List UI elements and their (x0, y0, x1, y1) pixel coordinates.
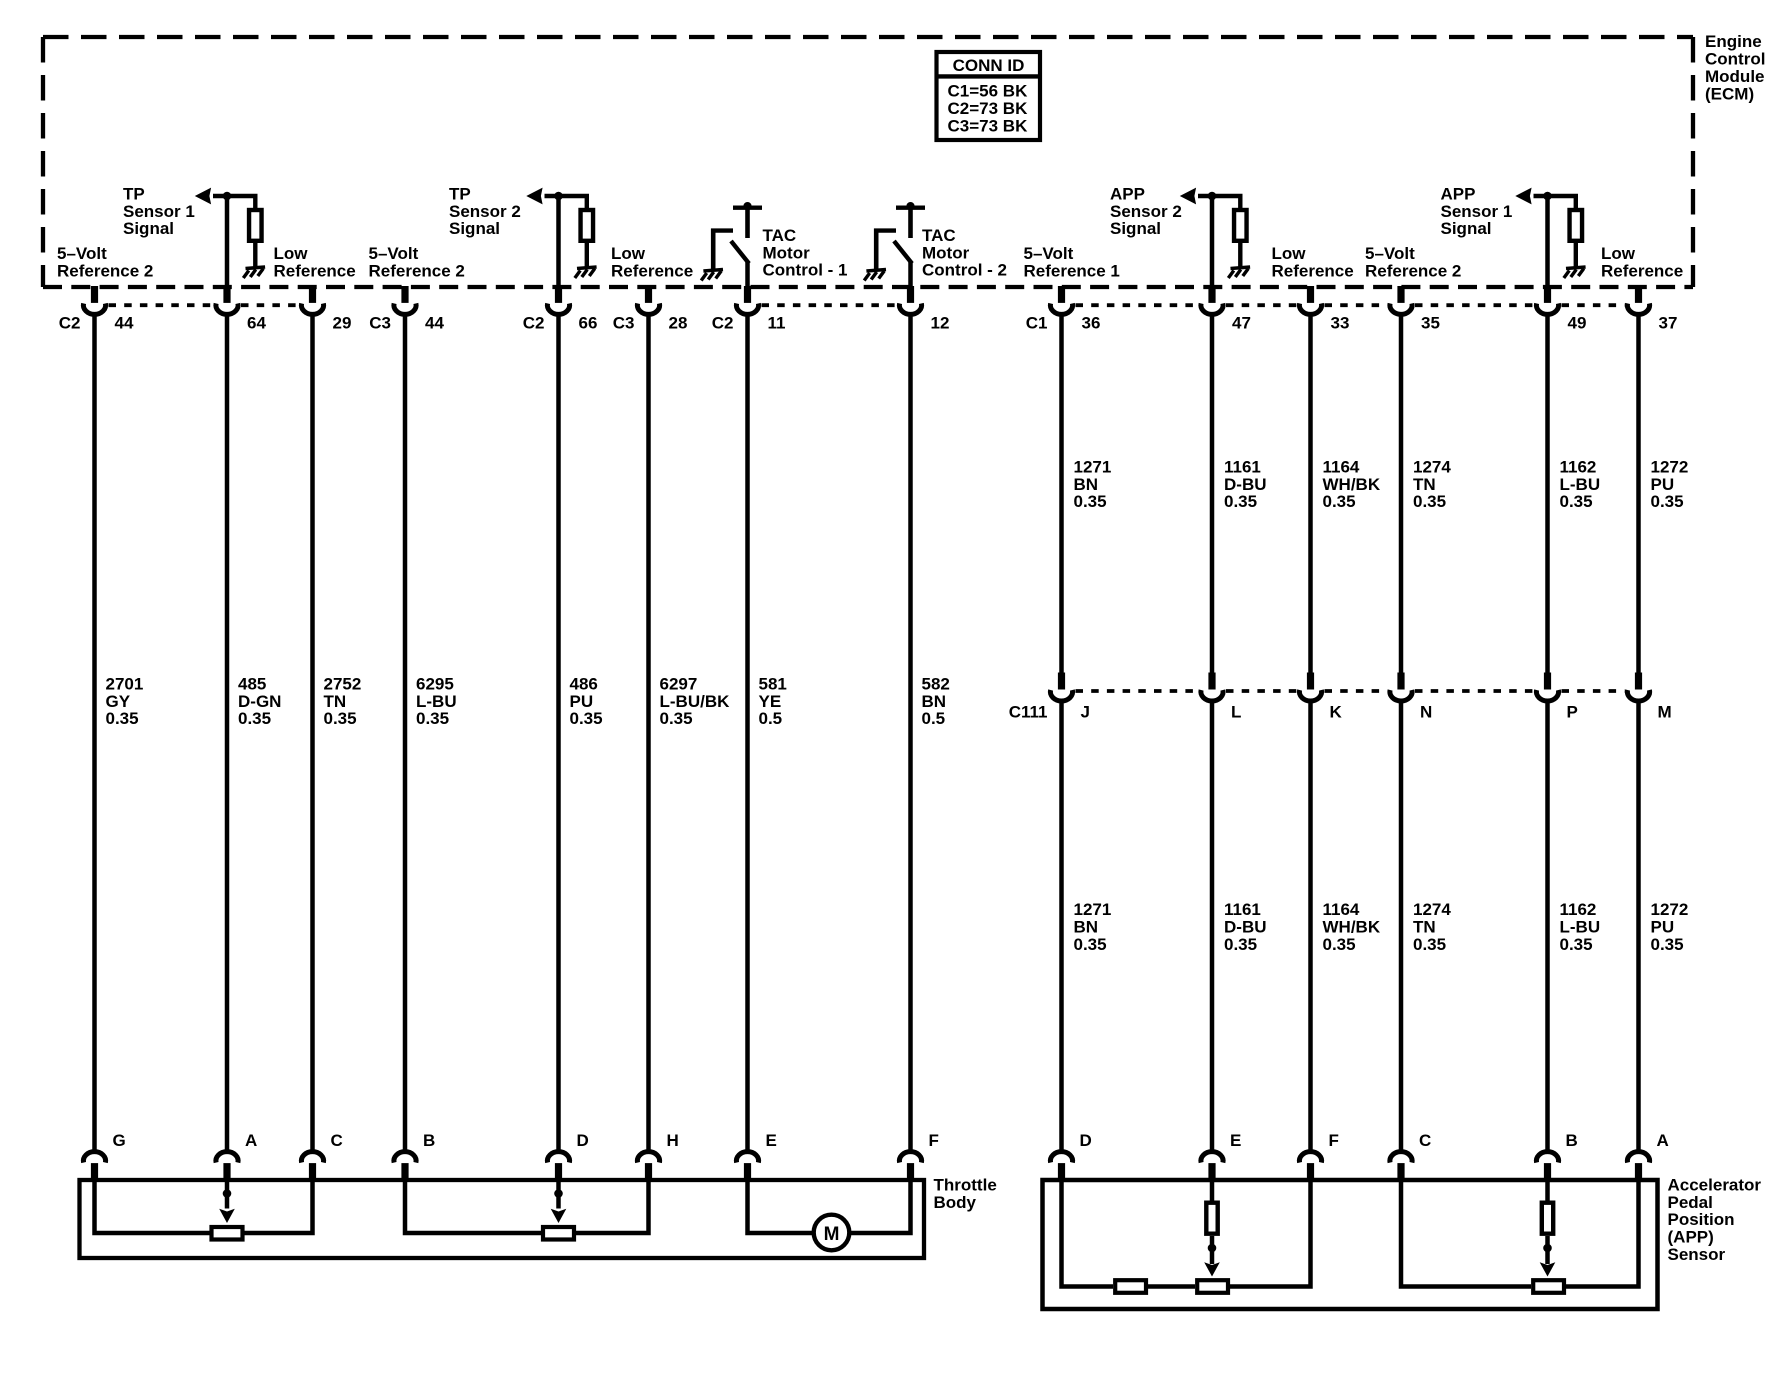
svg-text:0.35: 0.35 (1413, 935, 1446, 954)
svg-text:1272: 1272 (1651, 457, 1689, 476)
svg-text:0.35: 0.35 (660, 709, 693, 728)
svg-text:0.35: 0.35 (1074, 492, 1107, 511)
svg-text:BN: BN (1074, 475, 1099, 494)
svg-text:0.5: 0.5 (922, 709, 946, 728)
svg-text:C3: C3 (369, 314, 391, 333)
svg-text:0.35: 0.35 (1224, 492, 1257, 511)
svg-text:5–Volt: 5–Volt (57, 244, 107, 263)
svg-text:E: E (1230, 1131, 1241, 1150)
svg-text:C1=56 BK: C1=56 BK (948, 82, 1029, 101)
svg-text:C3=73 BK: C3=73 BK (948, 117, 1029, 136)
svg-text:BN: BN (922, 692, 947, 711)
svg-text:5–Volt: 5–Volt (1365, 244, 1415, 263)
svg-text:C2: C2 (712, 314, 734, 333)
svg-text:582: 582 (922, 674, 950, 693)
svg-text:F: F (1329, 1131, 1339, 1150)
svg-text:1164: 1164 (1323, 457, 1360, 476)
svg-text:K: K (1330, 703, 1343, 722)
svg-text:1271: 1271 (1074, 900, 1112, 919)
svg-text:D-BU: D-BU (1224, 475, 1267, 494)
svg-text:TAC: TAC (922, 226, 956, 245)
svg-text:Low: Low (1272, 244, 1307, 263)
svg-text:C2=73 BK: C2=73 BK (948, 99, 1029, 118)
svg-text:L-BU: L-BU (1560, 475, 1601, 494)
svg-text:12: 12 (931, 314, 950, 333)
svg-text:Reference: Reference (1601, 261, 1683, 280)
svg-text:Engine: Engine (1705, 32, 1762, 51)
svg-text:TAC: TAC (763, 226, 797, 245)
svg-text:Sensor 1: Sensor 1 (1441, 202, 1513, 221)
svg-text:0.35: 0.35 (1560, 935, 1593, 954)
svg-text:PU: PU (570, 692, 594, 711)
svg-text:Signal: Signal (1441, 219, 1492, 238)
svg-text:485: 485 (238, 674, 266, 693)
svg-text:B: B (1566, 1131, 1578, 1150)
svg-text:1272: 1272 (1651, 900, 1689, 919)
svg-text:D-BU: D-BU (1224, 917, 1267, 936)
svg-text:Low: Low (1601, 244, 1636, 263)
svg-text:5–Volt: 5–Volt (1024, 244, 1074, 263)
svg-text:0.35: 0.35 (1651, 492, 1684, 511)
svg-text:H: H (667, 1131, 679, 1150)
svg-text:PU: PU (1651, 475, 1675, 494)
svg-text:1274: 1274 (1413, 900, 1451, 919)
svg-text:Reference: Reference (1272, 261, 1354, 280)
svg-text:A: A (245, 1131, 257, 1150)
svg-text:0.35: 0.35 (1323, 935, 1356, 954)
svg-text:1161: 1161 (1224, 900, 1261, 919)
svg-text:P: P (1567, 703, 1578, 722)
svg-text:0.35: 0.35 (1651, 935, 1684, 954)
svg-text:APP: APP (1441, 184, 1476, 203)
svg-text:Reference 2: Reference 2 (369, 261, 465, 280)
svg-text:0.35: 0.35 (1560, 492, 1593, 511)
svg-text:TN: TN (324, 692, 347, 711)
svg-text:49: 49 (1568, 314, 1587, 333)
svg-text:33: 33 (1331, 314, 1350, 333)
svg-text:6297: 6297 (660, 674, 698, 693)
svg-text:64: 64 (247, 314, 266, 333)
svg-text:47: 47 (1232, 314, 1251, 333)
svg-text:1162: 1162 (1560, 900, 1597, 919)
svg-text:Sensor 2: Sensor 2 (1110, 202, 1182, 221)
svg-text:C: C (331, 1131, 343, 1150)
svg-text:C3: C3 (613, 314, 635, 333)
svg-text:Reference: Reference (274, 261, 356, 280)
svg-text:TN: TN (1413, 917, 1436, 936)
svg-text:37: 37 (1659, 314, 1678, 333)
svg-text:M: M (1658, 703, 1672, 722)
svg-text:G: G (113, 1131, 126, 1150)
svg-text:L: L (1231, 703, 1241, 722)
svg-text:Low: Low (611, 244, 646, 263)
svg-text:Reference: Reference (611, 261, 693, 280)
svg-text:D-GN: D-GN (238, 692, 281, 711)
svg-text:581: 581 (759, 674, 787, 693)
svg-text:Signal: Signal (123, 219, 174, 238)
svg-text:2752: 2752 (324, 674, 362, 693)
svg-text:28: 28 (669, 314, 688, 333)
svg-text:D: D (1080, 1131, 1092, 1150)
svg-text:1274: 1274 (1413, 457, 1451, 476)
svg-text:11: 11 (768, 314, 786, 333)
svg-text:Control - 1: Control - 1 (763, 261, 848, 280)
svg-text:35: 35 (1421, 314, 1440, 333)
svg-text:0.35: 0.35 (1074, 935, 1107, 954)
svg-text:BN: BN (1074, 917, 1099, 936)
svg-text:0.35: 0.35 (1413, 492, 1446, 511)
svg-text:L-BU: L-BU (1560, 917, 1601, 936)
svg-text:Reference 2: Reference 2 (57, 261, 153, 280)
svg-text:0.35: 0.35 (416, 709, 449, 728)
svg-text:0.35: 0.35 (106, 709, 139, 728)
svg-text:6295: 6295 (416, 674, 454, 693)
svg-text:44: 44 (115, 314, 134, 333)
svg-text:TN: TN (1413, 475, 1436, 494)
svg-text:1271: 1271 (1074, 457, 1112, 476)
svg-text:Position: Position (1668, 1210, 1735, 1229)
svg-text:B: B (423, 1131, 435, 1150)
svg-text:C1: C1 (1026, 314, 1048, 333)
svg-text:N: N (1420, 703, 1432, 722)
svg-text:Sensor: Sensor (1668, 1245, 1726, 1264)
svg-text:YE: YE (759, 692, 782, 711)
svg-text:(ECM): (ECM) (1705, 84, 1754, 103)
svg-text:36: 36 (1082, 314, 1101, 333)
svg-text:1164: 1164 (1323, 900, 1360, 919)
svg-text:2701: 2701 (106, 674, 144, 693)
svg-text:TP: TP (123, 184, 145, 203)
svg-text:L-BU/BK: L-BU/BK (660, 692, 731, 711)
svg-text:1162: 1162 (1560, 457, 1597, 476)
svg-text:66: 66 (579, 314, 598, 333)
svg-text:WH/BK: WH/BK (1323, 475, 1381, 494)
svg-text:APP: APP (1110, 184, 1145, 203)
svg-text:5–Volt: 5–Volt (369, 244, 419, 263)
svg-text:44: 44 (425, 314, 444, 333)
svg-text:M: M (824, 1224, 840, 1245)
svg-text:Reference 1: Reference 1 (1024, 261, 1120, 280)
svg-text:F: F (929, 1131, 939, 1150)
svg-text:1161: 1161 (1224, 457, 1261, 476)
svg-text:Control: Control (1705, 50, 1765, 69)
svg-text:A: A (1657, 1131, 1669, 1150)
svg-text:Control - 2: Control - 2 (922, 261, 1007, 280)
svg-text:Pedal: Pedal (1668, 1193, 1713, 1212)
svg-text:0.35: 0.35 (1224, 935, 1257, 954)
svg-text:0.35: 0.35 (324, 709, 357, 728)
svg-text:Accelerator: Accelerator (1668, 1175, 1762, 1194)
svg-text:E: E (766, 1131, 777, 1150)
svg-text:WH/BK: WH/BK (1323, 917, 1381, 936)
svg-text:(APP): (APP) (1668, 1228, 1714, 1247)
svg-text:Throttle: Throttle (934, 1175, 997, 1194)
svg-text:29: 29 (333, 314, 352, 333)
svg-text:C2: C2 (59, 314, 81, 333)
svg-text:Body: Body (934, 1193, 977, 1212)
svg-text:D: D (577, 1131, 589, 1150)
svg-text:0.35: 0.35 (1323, 492, 1356, 511)
svg-text:C: C (1419, 1131, 1431, 1150)
svg-text:Sensor 2: Sensor 2 (449, 202, 521, 221)
svg-text:Signal: Signal (1110, 219, 1161, 238)
svg-text:C111: C111 (1009, 703, 1048, 722)
svg-text:Module: Module (1705, 67, 1765, 86)
svg-text:L-BU: L-BU (416, 692, 457, 711)
svg-text:Sensor 1: Sensor 1 (123, 202, 195, 221)
svg-text:Signal: Signal (449, 219, 500, 238)
svg-text:TP: TP (449, 184, 471, 203)
svg-text:J: J (1081, 703, 1090, 722)
svg-text:PU: PU (1651, 917, 1675, 936)
svg-text:0.35: 0.35 (238, 709, 271, 728)
svg-text:Reference 2: Reference 2 (1365, 261, 1461, 280)
svg-text:0.35: 0.35 (570, 709, 603, 728)
svg-text:Low: Low (274, 244, 309, 263)
svg-text:C2: C2 (523, 314, 545, 333)
svg-text:Motor: Motor (763, 243, 811, 262)
svg-text:0.5: 0.5 (759, 709, 783, 728)
svg-text:CONN ID: CONN ID (953, 56, 1025, 75)
svg-text:486: 486 (570, 674, 598, 693)
svg-text:Motor: Motor (922, 243, 970, 262)
svg-text:GY: GY (106, 692, 131, 711)
